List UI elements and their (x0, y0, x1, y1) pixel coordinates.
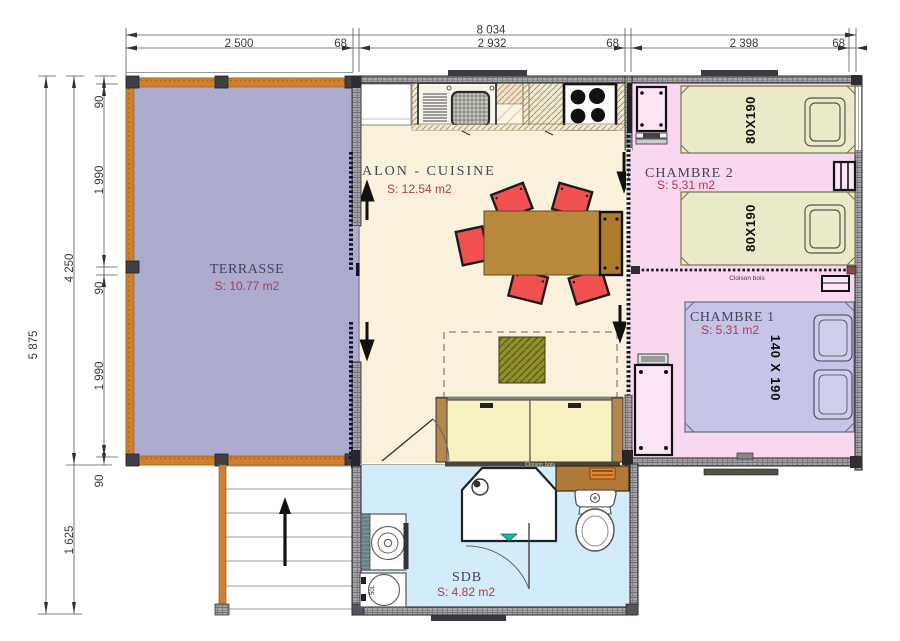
svg-text:90: 90 (94, 96, 106, 109)
svg-text:2 500: 2 500 (225, 38, 254, 50)
svg-text:TERRASSE: TERRASSE (210, 262, 284, 277)
svg-text:4 250: 4 250 (64, 254, 76, 283)
svg-text:SDB: SDB (452, 570, 482, 585)
svg-text:68: 68 (832, 38, 845, 50)
svg-text:80X190: 80X190 (743, 204, 758, 252)
svg-text:2 398: 2 398 (730, 38, 759, 50)
svg-text:80X190: 80X190 (743, 96, 758, 144)
svg-text:S: 4.82 m2: S: 4.82 m2 (437, 585, 495, 599)
svg-text:8 034: 8 034 (477, 25, 506, 37)
svg-text:1 990: 1 990 (94, 166, 106, 195)
svg-text:90: 90 (94, 282, 106, 295)
svg-text:90: 90 (94, 475, 106, 488)
svg-text:Cloison bois: Cloison bois (729, 275, 765, 282)
svg-text:140 X 190: 140 X 190 (768, 335, 783, 401)
svg-text:S: 5.31 m2: S: 5.31 m2 (701, 323, 759, 337)
svg-text:68: 68 (606, 38, 619, 50)
svg-text:S: 10.77 m2: S: 10.77 m2 (215, 279, 280, 293)
svg-text:1 990: 1 990 (94, 362, 106, 391)
svg-text:S: 12.54 m2: S: 12.54 m2 (387, 182, 452, 196)
svg-text:S: 5,31 m2: S: 5,31 m2 (657, 178, 715, 192)
svg-text:50L: 50L (370, 584, 376, 595)
svg-text:68: 68 (334, 38, 347, 50)
svg-text:5 875: 5 875 (28, 331, 40, 360)
svg-text:ALON - CUISINE: ALON - CUISINE (362, 164, 496, 179)
svg-text:1 625: 1 625 (64, 526, 76, 555)
svg-text:2 932: 2 932 (478, 38, 507, 50)
